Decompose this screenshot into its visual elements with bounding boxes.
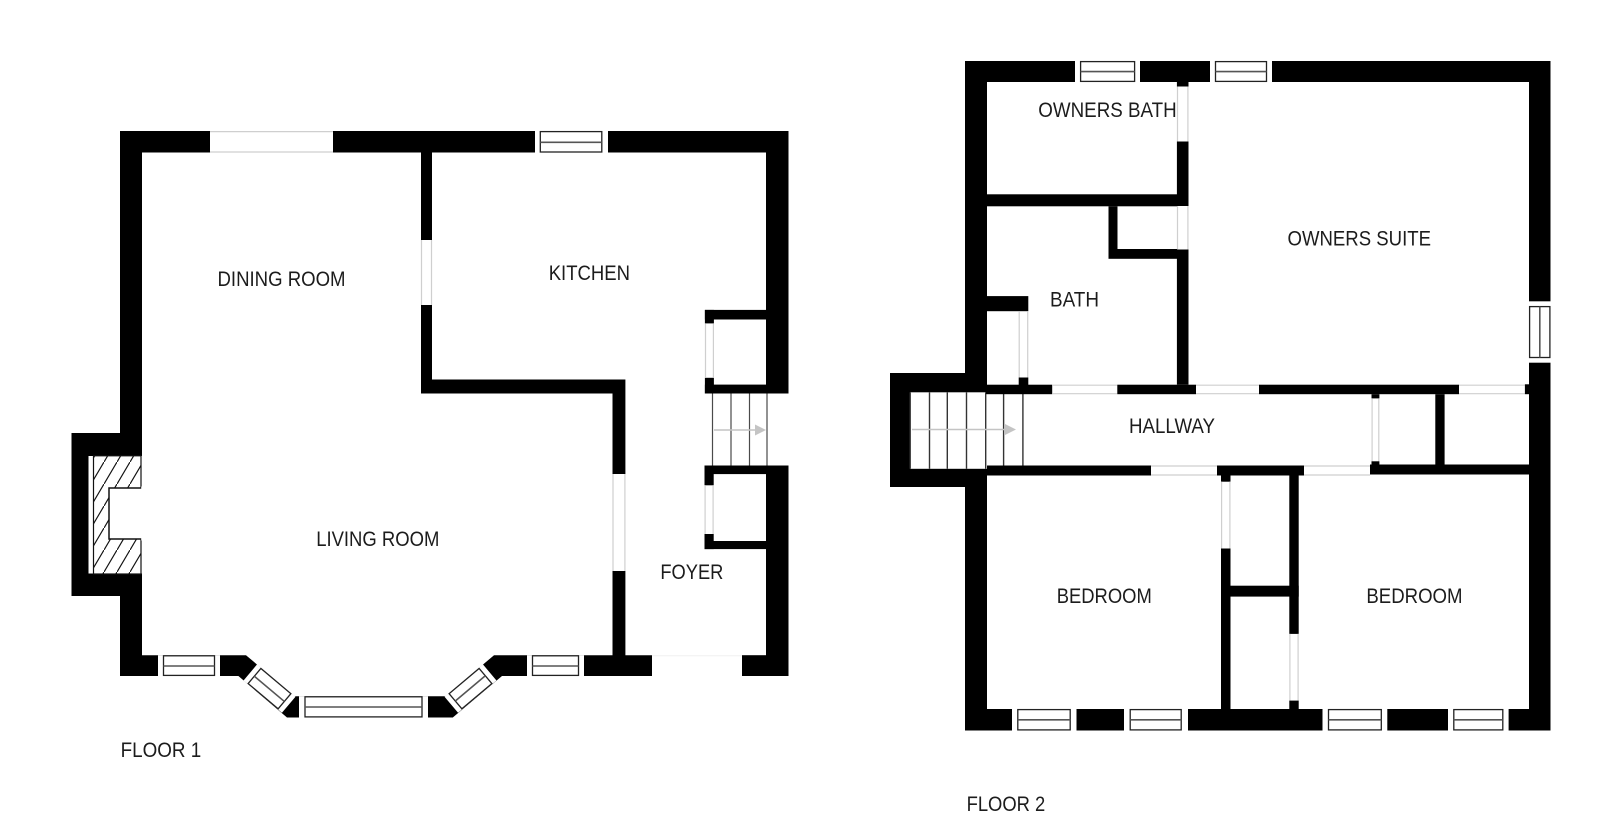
svg-text:DINING ROOM: DINING ROOM [218,267,346,291]
svg-text:HALLWAY: HALLWAY [1129,414,1215,438]
svg-text:OWNERS BATH: OWNERS BATH [1038,98,1176,122]
svg-text:FLOOR 1: FLOOR 1 [121,738,202,762]
svg-text:BEDROOM: BEDROOM [1366,584,1462,608]
svg-text:FOYER: FOYER [660,560,723,584]
svg-text:BEDROOM: BEDROOM [1057,584,1152,608]
svg-text:LIVING ROOM: LIVING ROOM [316,527,439,551]
svg-text:FLOOR 2: FLOOR 2 [967,792,1046,816]
svg-text:BATH: BATH [1050,288,1099,312]
svg-text:KITCHEN: KITCHEN [549,261,630,285]
svg-text:OWNERS SUITE: OWNERS SUITE [1288,227,1432,251]
